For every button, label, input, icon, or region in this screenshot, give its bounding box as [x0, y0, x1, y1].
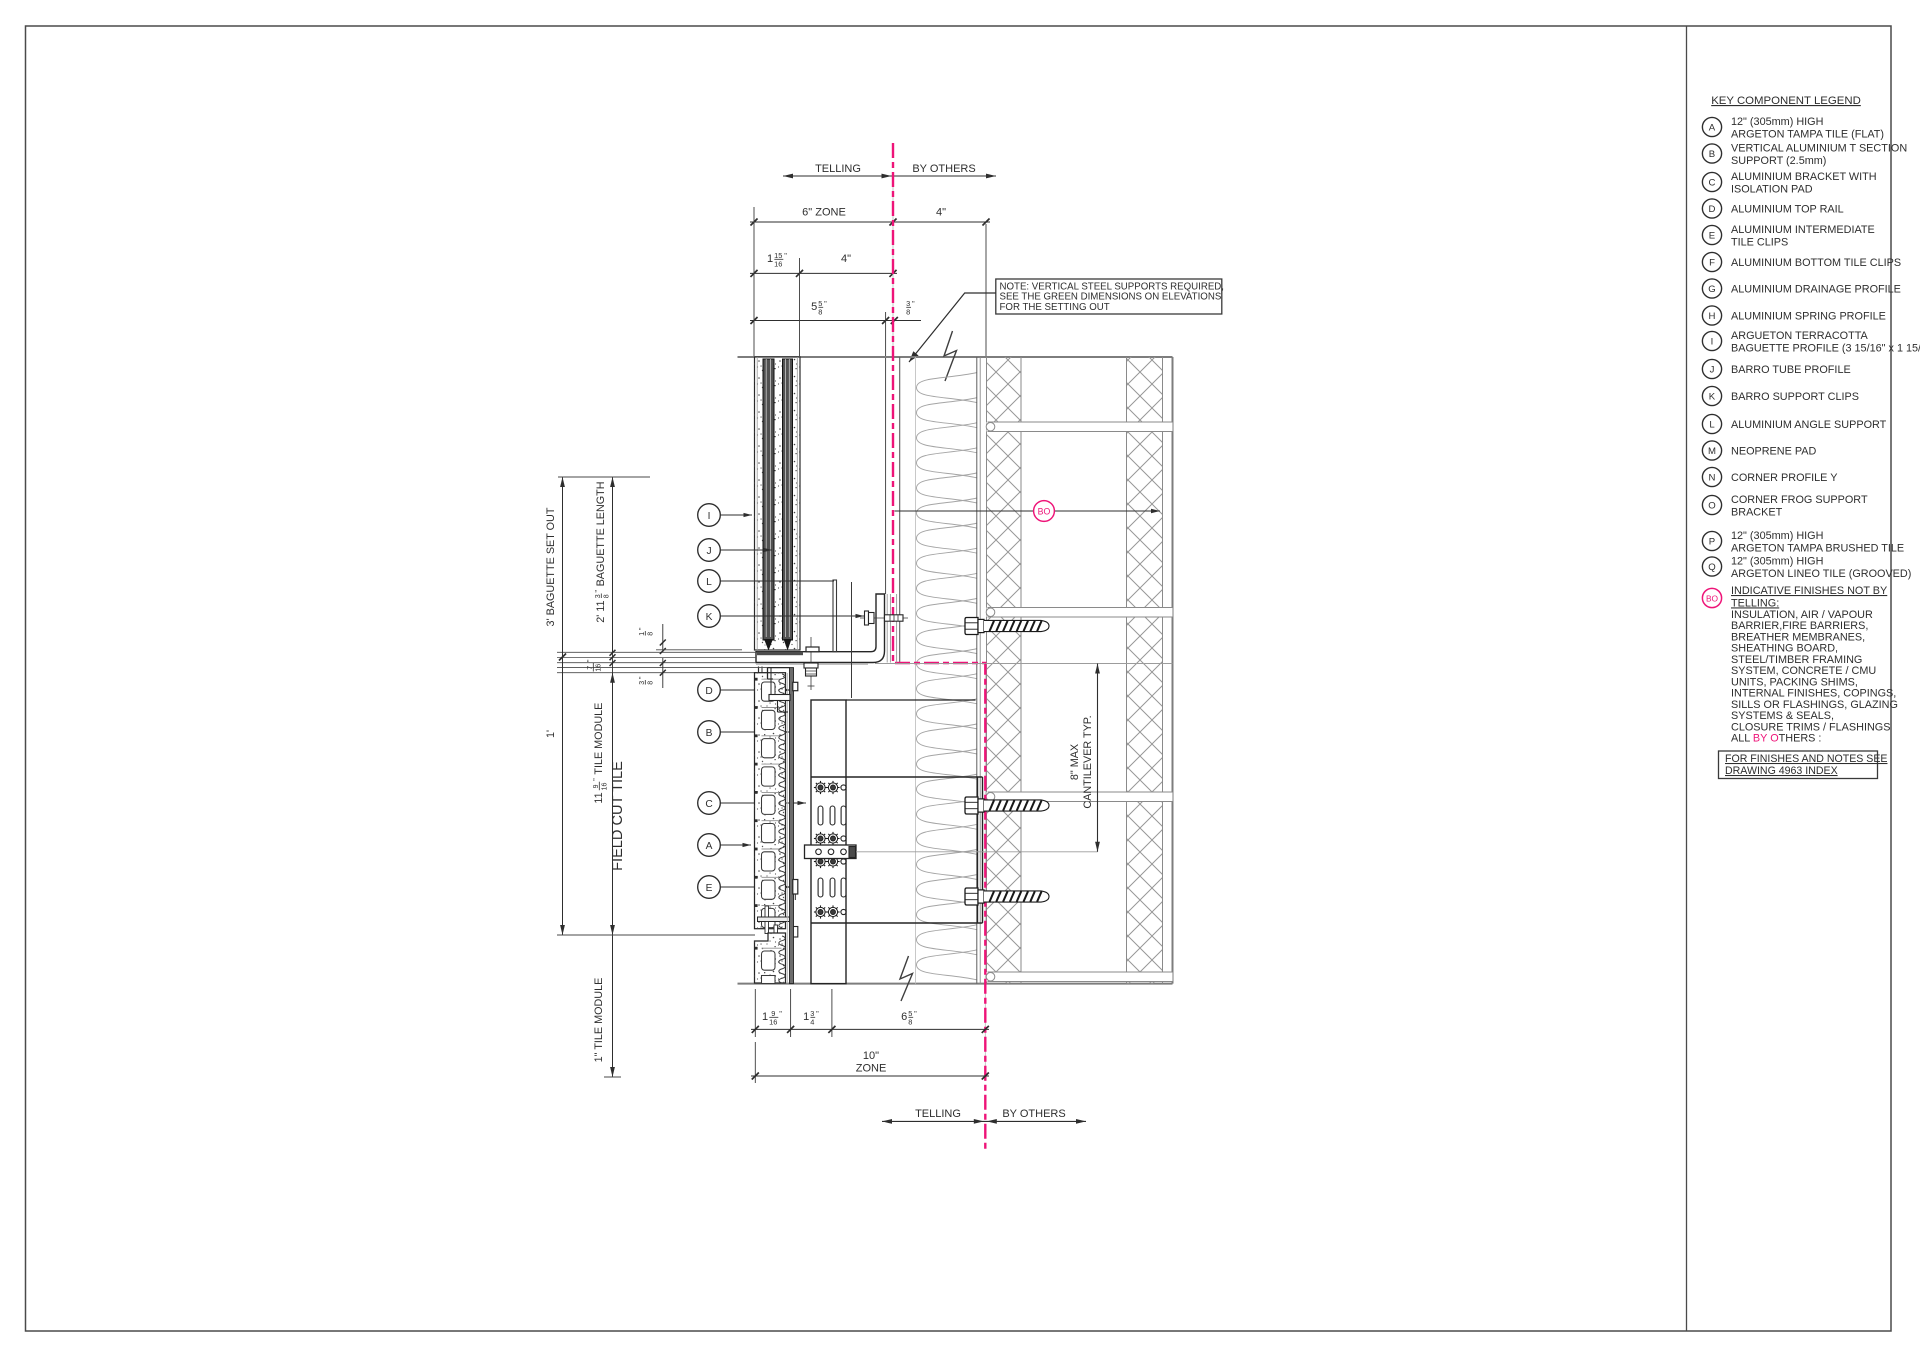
svg-text:K: K	[1709, 392, 1716, 403]
svg-text:TELLING: TELLING	[915, 1108, 961, 1120]
svg-text:D: D	[1709, 204, 1716, 215]
svg-text:": "	[912, 299, 915, 308]
svg-text:B: B	[1709, 149, 1715, 160]
svg-text:NEOPRENE PAD: NEOPRENE PAD	[1731, 446, 1817, 458]
svg-text:FOR THE SETTING OUT: FOR THE SETTING OUT	[1000, 302, 1110, 313]
svg-text:": "	[816, 1009, 819, 1018]
svg-text:ALUMINIUM DRAINAGE PROFILE: ALUMINIUM DRAINAGE PROFILE	[1731, 284, 1901, 296]
svg-text:I: I	[1711, 337, 1714, 348]
svg-text:CLOSURE TRIMS / FLASHINGS: CLOSURE TRIMS / FLASHINGS	[1731, 721, 1890, 733]
svg-text:DRAWING 4963 INDEX: DRAWING 4963 INDEX	[1725, 765, 1838, 777]
svg-text:N: N	[1709, 473, 1716, 484]
svg-text:1: 1	[803, 1011, 809, 1023]
svg-text:BO: BO	[1038, 506, 1051, 516]
svg-text:BO: BO	[1706, 594, 1719, 604]
svg-text:16: 16	[769, 1018, 777, 1027]
svg-text:E: E	[706, 883, 713, 894]
svg-text:KEY COMPONENT LEGEND: KEY COMPONENT LEGEND	[1711, 95, 1861, 107]
svg-text:8: 8	[604, 594, 611, 598]
svg-text:A: A	[706, 841, 713, 852]
svg-text:D: D	[705, 686, 712, 697]
svg-text:SYSTEMS & SEALS,: SYSTEMS & SEALS,	[1731, 710, 1834, 722]
svg-text:SHEATHING BOARD,: SHEATHING BOARD,	[1731, 643, 1838, 655]
svg-text:1: 1	[762, 1011, 768, 1023]
svg-text:6" ZONE: 6" ZONE	[802, 207, 846, 219]
svg-text:8: 8	[648, 681, 655, 685]
svg-text:": "	[824, 299, 827, 308]
svg-text:UNITS, PACKING SHIMS,: UNITS, PACKING SHIMS,	[1731, 676, 1858, 688]
svg-text:ALL BY OTHERS :: ALL BY OTHERS :	[1731, 733, 1821, 745]
svg-text:L: L	[1709, 420, 1715, 431]
svg-text:ISOLATION PAD: ISOLATION PAD	[1731, 183, 1813, 195]
svg-text:A: A	[1709, 123, 1716, 134]
svg-text:8" MAX: 8" MAX	[1069, 744, 1081, 780]
svg-text:16: 16	[596, 664, 603, 672]
svg-text:BAGUETTE PROFILE (3 15/16" x: BAGUETTE PROFILE (3 15/16" x 1 15/16")	[1731, 342, 1920, 354]
svg-text:J: J	[706, 546, 711, 557]
svg-text:11: 11	[593, 792, 605, 803]
svg-text:1': 1'	[545, 730, 557, 738]
svg-text:TILE MODULE: TILE MODULE	[593, 703, 605, 775]
svg-text:4": 4"	[936, 207, 946, 219]
svg-text:16: 16	[774, 260, 782, 269]
svg-text:TILE CLIPS: TILE CLIPS	[1731, 236, 1788, 248]
svg-text:INSULATION, AIR / VAPOUR: INSULATION, AIR / VAPOUR	[1731, 609, 1873, 621]
svg-text:2' 11: 2' 11	[595, 600, 607, 622]
svg-text:CORNER FROG SUPPORT: CORNER FROG SUPPORT	[1731, 494, 1868, 506]
svg-text:TELLING:: TELLING:	[1731, 597, 1779, 609]
svg-text:4": 4"	[841, 253, 851, 265]
svg-text:ALUMINIUM BOTTOM TILE CLIPS: ALUMINIUM BOTTOM TILE CLIPS	[1731, 257, 1901, 269]
svg-text:BARRIER,FIRE BARRIERS,: BARRIER,FIRE BARRIERS,	[1731, 620, 1868, 632]
svg-text:CANTILEVER TYP.: CANTILEVER TYP.	[1082, 715, 1094, 808]
svg-text:C: C	[1709, 178, 1716, 189]
svg-text:8: 8	[906, 308, 910, 317]
svg-text:M: M	[1708, 446, 1716, 457]
svg-text:BY OTHERS: BY OTHERS	[1002, 1108, 1065, 1120]
svg-text:1: 1	[767, 253, 773, 265]
svg-text:10": 10"	[863, 1050, 879, 1062]
svg-text:6: 6	[901, 1011, 907, 1023]
svg-text:STEEL/TIMBER FRAMING: STEEL/TIMBER FRAMING	[1731, 654, 1862, 666]
svg-text:H: H	[1709, 311, 1716, 322]
svg-text:1" TILE MODULE: 1" TILE MODULE	[593, 978, 605, 1063]
svg-text:G: G	[1708, 284, 1715, 295]
svg-text:P: P	[1709, 537, 1715, 548]
svg-text:O: O	[1708, 501, 1715, 512]
svg-text:K: K	[706, 612, 713, 623]
svg-text:FOR FINISHES AND NOTES SEE: FOR FINISHES AND NOTES SEE	[1725, 753, 1887, 765]
svg-text:ARGUETON TERRACOTTA: ARGUETON TERRACOTTA	[1731, 330, 1869, 342]
svg-text:B: B	[706, 728, 713, 739]
svg-text:INTERNAL FINISHES, COPINGS,: INTERNAL FINISHES, COPINGS,	[1731, 688, 1896, 700]
svg-text:CORNER PROFILE Y: CORNER PROFILE Y	[1731, 472, 1837, 484]
svg-text:": "	[779, 1009, 782, 1018]
svg-text:TELLING: TELLING	[815, 163, 861, 175]
svg-text:Q: Q	[1708, 562, 1715, 573]
svg-text:VERTICAL ALUMINIUM T SECTION: VERTICAL ALUMINIUM T SECTION	[1731, 143, 1907, 155]
svg-text:ARGETON LINEO TILE (GROOVED): ARGETON LINEO TILE (GROOVED)	[1731, 568, 1911, 580]
svg-text:12" (305mm) HIGH: 12" (305mm) HIGH	[1731, 556, 1823, 568]
svg-text:I: I	[708, 511, 711, 522]
svg-text:": "	[914, 1009, 917, 1018]
svg-text:J: J	[1710, 365, 1715, 376]
svg-text:16: 16	[602, 782, 609, 790]
svg-text:ALUMINIUM TOP RAIL: ALUMINIUM TOP RAIL	[1731, 204, 1844, 216]
svg-text:BY OTHERS: BY OTHERS	[912, 163, 975, 175]
svg-text:BAGUETTE LENGTH: BAGUETTE LENGTH	[595, 481, 607, 586]
svg-text:BARRO SUPPORT CLIPS: BARRO SUPPORT CLIPS	[1731, 391, 1859, 403]
svg-text:12" (305mm) HIGH: 12" (305mm) HIGH	[1731, 116, 1823, 128]
svg-text:ZONE: ZONE	[856, 1063, 887, 1075]
svg-text:C: C	[705, 799, 712, 810]
svg-text:F: F	[1709, 258, 1715, 269]
svg-text:3' BAGUETTE SET OUT: 3' BAGUETTE SET OUT	[545, 507, 557, 626]
svg-text:ALUMINIUM INTERMEDIATE: ALUMINIUM INTERMEDIATE	[1731, 224, 1875, 236]
svg-text:ALUMINIUM BRACKET WITH: ALUMINIUM BRACKET WITH	[1731, 171, 1877, 183]
svg-text:E: E	[1709, 231, 1715, 242]
svg-text:8: 8	[908, 1018, 912, 1027]
svg-text:BREATHER MEMBRANES,: BREATHER MEMBRANES,	[1731, 631, 1865, 643]
svg-text:SUPPORT (2.5mm): SUPPORT (2.5mm)	[1731, 155, 1826, 167]
svg-text:4: 4	[810, 1018, 814, 1027]
svg-text:FIELD CUT TILE: FIELD CUT TILE	[610, 761, 626, 871]
svg-text:SYSTEM, CONCRETE / CMU: SYSTEM, CONCRETE / CMU	[1731, 665, 1876, 677]
svg-text:": "	[784, 251, 787, 260]
svg-text:5: 5	[811, 301, 817, 313]
svg-text:INDICATIVE FINISHES NOT BY: INDICATIVE FINISHES NOT BY	[1731, 585, 1887, 597]
svg-text:ARGETON TAMPA BRUSHED TILE: ARGETON TAMPA BRUSHED TILE	[1731, 542, 1904, 554]
svg-text:BARRO TUBE PROFILE: BARRO TUBE PROFILE	[1731, 364, 1851, 376]
svg-text:12" (305mm) HIGH: 12" (305mm) HIGH	[1731, 530, 1823, 542]
svg-text:BRACKET: BRACKET	[1731, 506, 1783, 518]
svg-text:ARGETON TAMPA TILE (FLAT): ARGETON TAMPA TILE (FLAT)	[1731, 128, 1884, 140]
svg-text:8: 8	[818, 308, 822, 317]
svg-text:ALUMINIUM SPRING PROFILE: ALUMINIUM SPRING PROFILE	[1731, 311, 1886, 323]
svg-text:SILLS OR FLASHINGS, GLAZING: SILLS OR FLASHINGS, GLAZING	[1731, 699, 1898, 711]
svg-text:L: L	[706, 577, 712, 588]
svg-text:8: 8	[648, 632, 655, 636]
svg-text:ALUMINIUM ANGLE SUPPORT: ALUMINIUM ANGLE SUPPORT	[1731, 419, 1887, 431]
